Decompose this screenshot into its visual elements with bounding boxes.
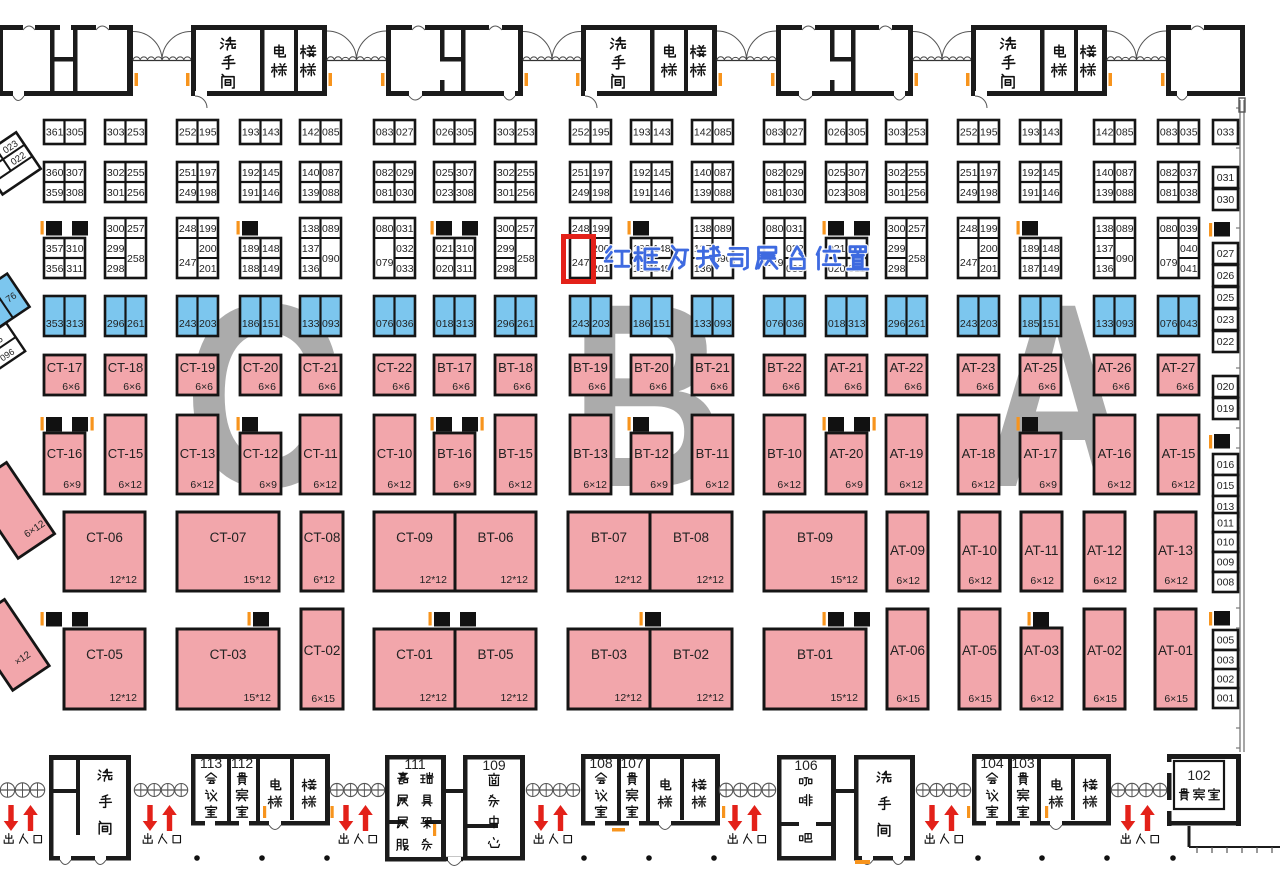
svg-text:AT-22: AT-22: [890, 360, 924, 375]
svg-text:030: 030: [786, 187, 804, 199]
svg-text:356: 356: [46, 263, 64, 275]
svg-text:6×12: 6×12: [777, 479, 801, 491]
svg-text:247: 247: [179, 257, 197, 269]
svg-text:037: 037: [1180, 167, 1198, 179]
svg-text:15*12: 15*12: [831, 574, 859, 586]
svg-text:085: 085: [322, 127, 340, 139]
svg-text:298: 298: [497, 263, 515, 275]
svg-text:140: 140: [302, 167, 320, 179]
svg-text:249: 249: [572, 187, 590, 199]
svg-text:192: 192: [1022, 167, 1040, 179]
svg-text:261: 261: [517, 318, 535, 330]
svg-text:300: 300: [888, 223, 906, 235]
svg-text:313: 313: [456, 318, 474, 330]
svg-text:252: 252: [179, 127, 197, 139]
svg-text:6×15: 6×15: [311, 693, 335, 705]
svg-text:080: 080: [1160, 223, 1178, 235]
svg-text:029: 029: [786, 167, 804, 179]
svg-text:303: 303: [888, 127, 906, 139]
svg-text:076: 076: [376, 318, 394, 330]
svg-text:6×6: 6×6: [318, 381, 336, 393]
svg-text:199: 199: [592, 223, 610, 235]
svg-text:018: 018: [828, 318, 846, 330]
svg-text:15*12: 15*12: [831, 692, 859, 704]
svg-text:197: 197: [199, 167, 217, 179]
svg-text:CT-06: CT-06: [86, 530, 123, 545]
svg-text:145: 145: [1042, 167, 1060, 179]
svg-text:038: 038: [1180, 187, 1198, 199]
svg-text:6×6: 6×6: [452, 381, 470, 393]
svg-text:192: 192: [242, 167, 260, 179]
svg-text:251: 251: [960, 167, 978, 179]
svg-text:305: 305: [456, 127, 474, 139]
svg-text:201: 201: [980, 263, 998, 275]
svg-text:AT-02: AT-02: [1087, 643, 1122, 658]
svg-text:12*12: 12*12: [615, 692, 643, 704]
svg-text:031: 031: [786, 223, 804, 235]
svg-text:BT-16: BT-16: [437, 446, 472, 461]
svg-text:025: 025: [436, 167, 454, 179]
svg-text:199: 199: [199, 223, 217, 235]
svg-text:AT-13: AT-13: [1158, 543, 1193, 558]
svg-text:021: 021: [436, 243, 454, 255]
svg-text:6×6: 6×6: [904, 381, 922, 393]
svg-text:139: 139: [694, 187, 712, 199]
svg-text:102: 102: [1187, 767, 1211, 783]
svg-text:BT-22: BT-22: [767, 360, 802, 375]
svg-text:103: 103: [1011, 755, 1035, 771]
svg-text:256: 256: [517, 187, 535, 199]
svg-text:253: 253: [908, 127, 926, 139]
svg-text:252: 252: [572, 127, 590, 139]
svg-text:036: 036: [396, 318, 414, 330]
svg-text:139: 139: [302, 187, 320, 199]
svg-text:357: 357: [46, 243, 64, 255]
svg-text:12*12: 12*12: [110, 692, 138, 704]
svg-text:CT-20: CT-20: [243, 360, 278, 375]
svg-text:361: 361: [46, 127, 64, 139]
svg-text:6×6: 6×6: [1112, 381, 1130, 393]
svg-text:302: 302: [888, 167, 906, 179]
svg-text:6×6: 6×6: [782, 381, 800, 393]
svg-text:199: 199: [980, 223, 998, 235]
svg-text:BT-12: BT-12: [634, 446, 669, 461]
svg-text:186: 186: [633, 318, 651, 330]
svg-text:6×12: 6×12: [1107, 479, 1131, 491]
svg-text:6×12: 6×12: [1171, 479, 1195, 491]
svg-text:6×12: 6×12: [583, 479, 607, 491]
svg-text:146: 146: [262, 187, 280, 199]
svg-text:12*12: 12*12: [615, 574, 643, 586]
svg-text:BT-03: BT-03: [591, 647, 627, 662]
svg-text:249: 249: [179, 187, 197, 199]
svg-text:AT-16: AT-16: [1098, 446, 1132, 461]
svg-text:299: 299: [497, 243, 515, 255]
svg-text:198: 198: [592, 187, 610, 199]
svg-text:6×12: 6×12: [1030, 575, 1054, 587]
svg-text:003: 003: [1217, 655, 1235, 667]
svg-text:CT-19: CT-19: [180, 360, 215, 375]
svg-text:6×12: 6×12: [508, 479, 532, 491]
svg-text:AT-15: AT-15: [1162, 446, 1196, 461]
svg-text:310: 310: [456, 243, 474, 255]
svg-text:203: 203: [592, 318, 610, 330]
svg-text:307: 307: [66, 167, 84, 179]
svg-text:081: 081: [1160, 187, 1178, 199]
svg-text:299: 299: [107, 243, 125, 255]
svg-text:191: 191: [633, 187, 651, 199]
svg-text:303: 303: [497, 127, 515, 139]
svg-text:257: 257: [517, 223, 535, 235]
svg-text:081: 081: [376, 187, 394, 199]
svg-text:296: 296: [888, 318, 906, 330]
svg-text:197: 197: [980, 167, 998, 179]
svg-text:298: 298: [107, 263, 125, 275]
svg-text:BT-05: BT-05: [477, 647, 513, 662]
svg-text:298: 298: [888, 263, 906, 275]
svg-text:082: 082: [1160, 167, 1178, 179]
svg-text:6×12: 6×12: [190, 479, 214, 491]
svg-text:020: 020: [1217, 381, 1235, 393]
svg-text:243: 243: [179, 318, 197, 330]
svg-text:311: 311: [66, 263, 83, 275]
svg-text:136: 136: [1096, 263, 1114, 275]
svg-text:081: 081: [766, 187, 784, 199]
svg-text:6*12: 6*12: [313, 574, 335, 586]
svg-text:109: 109: [482, 757, 506, 773]
svg-text:CT-02: CT-02: [304, 643, 341, 658]
svg-text:139: 139: [1096, 187, 1114, 199]
svg-text:6×15: 6×15: [1164, 693, 1188, 705]
svg-text:AT-11: AT-11: [1024, 543, 1058, 558]
svg-text:BT-18: BT-18: [498, 360, 533, 375]
svg-text:257: 257: [908, 223, 926, 235]
svg-text:256: 256: [908, 187, 926, 199]
svg-text:151: 151: [653, 318, 671, 330]
svg-text:033: 033: [396, 263, 414, 275]
svg-text:248: 248: [960, 223, 978, 235]
svg-text:143: 143: [1042, 127, 1060, 139]
svg-text:040: 040: [1180, 243, 1198, 255]
svg-text:011: 011: [1217, 518, 1234, 530]
svg-text:257: 257: [127, 223, 145, 235]
svg-text:296: 296: [107, 318, 125, 330]
svg-text:195: 195: [980, 127, 998, 139]
svg-text:12*12: 12*12: [420, 692, 448, 704]
svg-text:248: 248: [179, 223, 197, 235]
svg-text:302: 302: [497, 167, 515, 179]
svg-text:191: 191: [242, 187, 260, 199]
svg-text:AT-27: AT-27: [1162, 360, 1196, 375]
svg-text:203: 203: [199, 318, 217, 330]
svg-text:020: 020: [436, 263, 454, 275]
svg-text:138: 138: [1096, 223, 1114, 235]
svg-text:200: 200: [199, 243, 217, 255]
svg-text:148: 148: [262, 243, 280, 255]
svg-text:193: 193: [1022, 127, 1040, 139]
svg-text:145: 145: [653, 167, 671, 179]
svg-text:248: 248: [572, 223, 590, 235]
svg-text:BT-07: BT-07: [591, 530, 627, 545]
svg-text:087: 087: [322, 167, 340, 179]
svg-text:026: 026: [1217, 270, 1235, 282]
svg-text:CT-08: CT-08: [304, 530, 341, 545]
svg-text:CT-07: CT-07: [210, 530, 247, 545]
svg-text:6×12: 6×12: [1093, 575, 1117, 587]
svg-text:6×9: 6×9: [845, 479, 863, 491]
svg-text:005: 005: [1217, 635, 1235, 647]
svg-text:200: 200: [980, 243, 998, 255]
svg-text:026: 026: [436, 127, 454, 139]
svg-text:104: 104: [980, 755, 1004, 771]
svg-text:307: 307: [456, 167, 474, 179]
svg-text:261: 261: [908, 318, 926, 330]
svg-text:247: 247: [960, 257, 978, 269]
svg-text:151: 151: [262, 318, 280, 330]
svg-text:6×6: 6×6: [588, 381, 606, 393]
svg-text:146: 146: [1042, 187, 1060, 199]
svg-text:BT-10: BT-10: [767, 446, 802, 461]
svg-text:146: 146: [653, 187, 671, 199]
svg-text:043: 043: [1180, 318, 1198, 330]
svg-text:076: 076: [766, 318, 784, 330]
svg-text:143: 143: [262, 127, 280, 139]
svg-text:249: 249: [960, 187, 978, 199]
svg-text:033: 033: [1217, 127, 1235, 139]
svg-text:6×6: 6×6: [844, 381, 862, 393]
svg-text:149: 149: [1042, 263, 1060, 275]
svg-text:6×9: 6×9: [1039, 479, 1057, 491]
svg-text:BT-01: BT-01: [797, 647, 833, 662]
svg-text:088: 088: [1116, 187, 1134, 199]
svg-text:353: 353: [46, 318, 64, 330]
svg-text:6×6: 6×6: [258, 381, 276, 393]
svg-text:023: 023: [436, 187, 454, 199]
svg-text:082: 082: [376, 167, 394, 179]
svg-text:023: 023: [1217, 314, 1235, 326]
svg-text:145: 145: [262, 167, 280, 179]
svg-text:010: 010: [1217, 537, 1235, 549]
svg-text:083: 083: [1160, 127, 1178, 139]
svg-text:CT-10: CT-10: [377, 446, 412, 461]
svg-text:027: 027: [396, 127, 414, 139]
svg-text:036: 036: [786, 318, 804, 330]
svg-text:305: 305: [66, 127, 84, 139]
svg-text:310: 310: [66, 243, 84, 255]
svg-text:025: 025: [1217, 292, 1235, 304]
svg-text:013: 013: [1217, 501, 1235, 513]
svg-text:076: 076: [1160, 318, 1178, 330]
svg-text:302: 302: [107, 167, 125, 179]
svg-text:008: 008: [1217, 577, 1235, 589]
svg-text:189: 189: [242, 243, 260, 255]
svg-text:079: 079: [1160, 257, 1178, 269]
svg-text:198: 198: [980, 187, 998, 199]
svg-text:AT-25: AT-25: [1024, 360, 1058, 375]
svg-text:079: 079: [376, 257, 394, 269]
svg-text:BT-13: BT-13: [573, 446, 608, 461]
svg-text:BT-08: BT-08: [673, 530, 709, 545]
svg-text:308: 308: [66, 187, 84, 199]
svg-text:6×6: 6×6: [710, 381, 728, 393]
svg-text:015: 015: [1217, 480, 1235, 492]
svg-text:6×12: 6×12: [1164, 575, 1188, 587]
svg-text:BT-20: BT-20: [634, 360, 669, 375]
svg-text:029: 029: [396, 167, 414, 179]
svg-text:019: 019: [1217, 403, 1235, 415]
svg-text:AT-20: AT-20: [830, 446, 864, 461]
svg-text:6×6: 6×6: [195, 381, 213, 393]
svg-text:148: 148: [1042, 243, 1060, 255]
svg-text:016: 016: [1217, 459, 1235, 471]
svg-text:258: 258: [517, 253, 535, 265]
svg-text:195: 195: [592, 127, 610, 139]
svg-text:BT-09: BT-09: [797, 530, 833, 545]
svg-text:142: 142: [694, 127, 712, 139]
svg-text:6×6: 6×6: [976, 381, 994, 393]
svg-text:187: 187: [1022, 263, 1040, 275]
svg-text:093: 093: [322, 318, 340, 330]
svg-text:6×15: 6×15: [968, 693, 992, 705]
svg-text:089: 089: [714, 223, 732, 235]
svg-text:082: 082: [766, 167, 784, 179]
svg-text:255: 255: [517, 167, 535, 179]
svg-text:133: 133: [694, 318, 712, 330]
svg-text:BT-06: BT-06: [477, 530, 513, 545]
svg-text:002: 002: [1217, 674, 1235, 686]
svg-text:BT-19: BT-19: [573, 360, 608, 375]
svg-text:201: 201: [199, 263, 217, 275]
svg-text:243: 243: [960, 318, 978, 330]
svg-text:258: 258: [908, 253, 926, 265]
svg-text:6×12: 6×12: [1030, 693, 1054, 705]
svg-text:256: 256: [127, 187, 145, 199]
svg-text:027: 027: [1217, 248, 1235, 260]
svg-text:AT-26: AT-26: [1098, 360, 1132, 375]
svg-text:140: 140: [1096, 167, 1114, 179]
svg-text:087: 087: [1116, 167, 1134, 179]
svg-text:193: 193: [242, 127, 260, 139]
svg-text:6×6: 6×6: [123, 381, 141, 393]
svg-text:111: 111: [404, 756, 425, 772]
svg-text:296: 296: [497, 318, 515, 330]
svg-text:151: 151: [1042, 318, 1060, 330]
svg-text:15*12: 15*12: [244, 574, 272, 586]
svg-text:108: 108: [589, 755, 613, 771]
svg-text:AT-03: AT-03: [1024, 643, 1059, 658]
svg-text:CT-22: CT-22: [377, 360, 412, 375]
svg-text:136: 136: [302, 263, 320, 275]
svg-text:143: 143: [653, 127, 671, 139]
svg-text:313: 313: [848, 318, 866, 330]
svg-text:089: 089: [322, 223, 340, 235]
svg-text:AT-23: AT-23: [962, 360, 996, 375]
svg-text:359: 359: [46, 187, 64, 199]
svg-text:088: 088: [322, 187, 340, 199]
svg-text:025: 025: [828, 167, 846, 179]
svg-text:6×12: 6×12: [899, 479, 923, 491]
svg-text:133: 133: [302, 318, 320, 330]
svg-text:252: 252: [960, 127, 978, 139]
svg-text:138: 138: [302, 223, 320, 235]
svg-text:085: 085: [714, 127, 732, 139]
svg-text:6×6: 6×6: [513, 381, 531, 393]
svg-text:6×15: 6×15: [896, 693, 920, 705]
svg-text:080: 080: [376, 223, 394, 235]
svg-text:6×12: 6×12: [313, 479, 337, 491]
svg-text:138: 138: [694, 223, 712, 235]
svg-text:032: 032: [396, 243, 414, 255]
svg-text:6×6: 6×6: [649, 381, 667, 393]
svg-text:360: 360: [46, 167, 64, 179]
svg-text:6×12: 6×12: [387, 479, 411, 491]
svg-text:6×12: 6×12: [971, 479, 995, 491]
svg-text:022: 022: [1217, 336, 1235, 348]
svg-text:6×6: 6×6: [1038, 381, 1056, 393]
svg-text:113: 113: [200, 755, 223, 771]
svg-text:203: 203: [980, 318, 998, 330]
svg-text:133: 133: [1096, 318, 1114, 330]
svg-text:6×6: 6×6: [1176, 381, 1194, 393]
svg-text:089: 089: [1116, 223, 1134, 235]
svg-text:6×9: 6×9: [259, 479, 277, 491]
svg-text:6×12: 6×12: [118, 479, 142, 491]
svg-text:CT-03: CT-03: [210, 647, 247, 662]
svg-text:CT-11: CT-11: [303, 446, 337, 461]
svg-text:009: 009: [1217, 557, 1235, 569]
svg-text:189: 189: [1022, 243, 1040, 255]
svg-text:6×12: 6×12: [705, 479, 729, 491]
svg-text:AT-21: AT-21: [830, 360, 864, 375]
svg-text:CT-17: CT-17: [47, 360, 82, 375]
svg-text:311: 311: [456, 263, 473, 275]
svg-text:299: 299: [888, 243, 906, 255]
svg-text:308: 308: [848, 187, 866, 199]
svg-text:198: 198: [199, 187, 217, 199]
svg-text:BT-02: BT-02: [673, 647, 709, 662]
svg-text:253: 253: [127, 127, 145, 139]
svg-text:001: 001: [1217, 693, 1235, 705]
svg-text:CT-15: CT-15: [108, 446, 143, 461]
svg-text:090: 090: [322, 253, 340, 265]
svg-text:BT-15: BT-15: [498, 446, 533, 461]
svg-text:CT-01: CT-01: [396, 647, 433, 662]
svg-text:247: 247: [572, 257, 590, 269]
svg-text:080: 080: [766, 223, 784, 235]
svg-text:137: 137: [1096, 243, 1114, 255]
svg-text:188: 188: [242, 263, 260, 275]
svg-text:090: 090: [1116, 253, 1134, 265]
svg-text:301: 301: [107, 187, 125, 199]
svg-text:137: 137: [302, 243, 320, 255]
svg-text:255: 255: [908, 167, 926, 179]
svg-text:AT-01: AT-01: [1158, 643, 1193, 658]
svg-text:AT-17: AT-17: [1024, 446, 1058, 461]
svg-text:197: 197: [592, 167, 610, 179]
svg-text:300: 300: [497, 223, 515, 235]
svg-text:185: 185: [1022, 318, 1040, 330]
svg-text:CT-05: CT-05: [86, 647, 123, 662]
svg-text:030: 030: [1217, 194, 1235, 206]
svg-text:039: 039: [1180, 223, 1198, 235]
svg-text:6×9: 6×9: [63, 479, 81, 491]
svg-text:CT-09: CT-09: [396, 530, 433, 545]
svg-text:BT-11: BT-11: [696, 446, 730, 461]
svg-text:255: 255: [127, 167, 145, 179]
svg-text:035: 035: [1180, 127, 1198, 139]
svg-text:195: 195: [199, 127, 217, 139]
svg-text:12*12: 12*12: [110, 574, 138, 586]
